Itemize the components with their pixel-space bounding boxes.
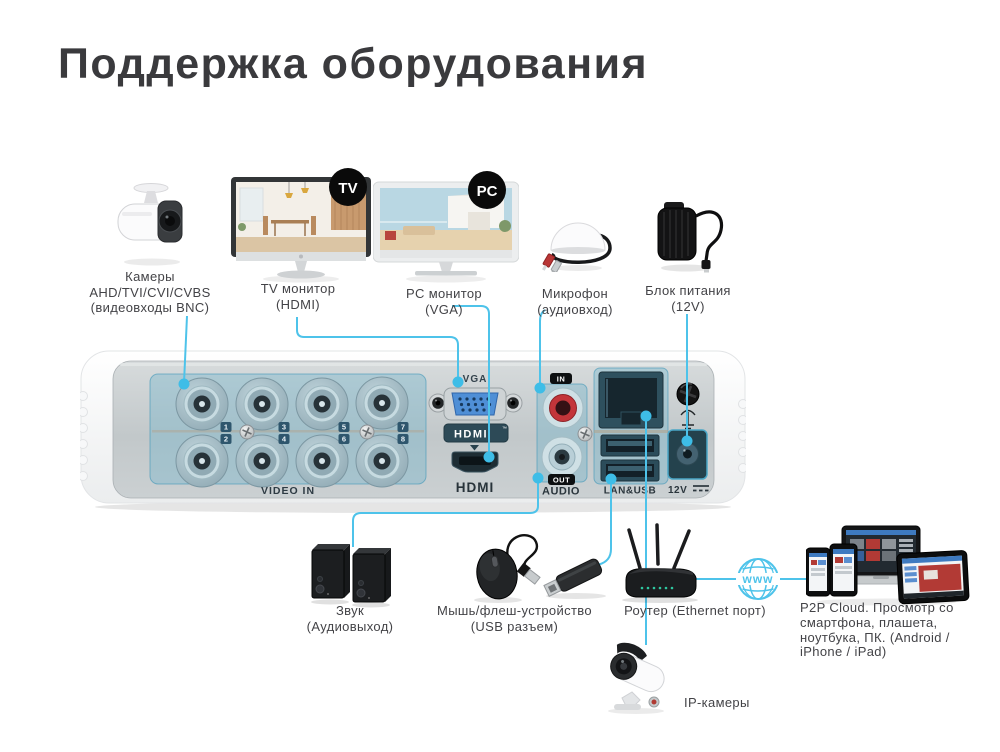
dc-power-jack [668, 430, 707, 479]
audio-in-badge: IN [557, 375, 566, 384]
mouse-flash-illustration [458, 524, 614, 604]
usb-devices-label: Мышь/флеш-устройство (USB разъем) [422, 603, 607, 634]
power-adapter-illustration [650, 198, 730, 274]
tv-badge: TV [329, 168, 367, 206]
bnc-connector [176, 435, 228, 487]
usb-plug [517, 563, 541, 585]
hdmi-label: HDMI [456, 480, 495, 495]
svg-text:7: 7 [401, 423, 405, 432]
svg-text:5: 5 [342, 423, 346, 432]
audio-label: AUDIO [542, 486, 580, 498]
rca-audio-out [542, 437, 582, 477]
tv-monitor-label: TV монитор (HDMI) [228, 281, 368, 312]
tablet [897, 550, 970, 604]
video-in-label: VIDEO IN [261, 485, 315, 497]
video-in-section: 1 2 3 4 5 6 7 8 VIDEO IN [150, 374, 426, 497]
tv-monitor-illustration: TV [231, 167, 373, 283]
page-title: Поддержка оборудования [58, 40, 648, 89]
svg-text:8: 8 [401, 435, 405, 444]
screw [360, 425, 374, 439]
lan-usb-section: LAN&USB [594, 368, 668, 497]
www-globe-icon: www [731, 552, 785, 608]
router-antennas [629, 525, 689, 568]
pc-monitor-illustration: PC [373, 168, 519, 284]
bnc-connector [356, 377, 408, 429]
svg-text:2: 2 [224, 435, 228, 444]
mouse-body [473, 546, 521, 602]
power-supply-label: Блок питания (12V) [618, 283, 758, 314]
p2p-cloud-label: P2P Cloud. Просмотр со смартфона, плашет… [800, 601, 992, 660]
router-label: Роутер (Ethernet порт) [595, 603, 795, 619]
screw [240, 425, 254, 439]
pc-badge: PC [468, 171, 506, 209]
speakers-illustration [306, 542, 398, 608]
smartphone [806, 548, 830, 596]
p2p-devices-illustration [806, 524, 971, 608]
ip-camera-body [605, 638, 673, 695]
power-screw [677, 383, 699, 405]
dvr-back-panel: 1 2 3 4 5 6 7 8 VIDEO IN VGA [80, 350, 746, 516]
power-label: 12V [668, 485, 687, 496]
svg-text:1: 1 [224, 423, 228, 432]
usb-port [601, 460, 659, 481]
router-illustration [616, 522, 708, 604]
ethernet-port [599, 372, 663, 428]
speakers-label: Звук (Аудиовыход) [280, 603, 420, 634]
audio-jack-3.5mm [504, 394, 522, 412]
vga-label: VGA [463, 374, 488, 385]
ip-cameras-label: IP-камеры [684, 695, 784, 711]
rca-audio-in [543, 388, 583, 428]
svg-text:TV: TV [338, 180, 357, 197]
svg-text:3: 3 [282, 423, 286, 432]
infographic-canvas: Поддержка оборудования [0, 0, 1000, 752]
svg-text:PC: PC [477, 183, 498, 200]
cameras-label: Камеры AHD/TVI/CVI/CVBS (видеовходы BNC) [70, 269, 230, 316]
hdmi-logo-tm: ™ [502, 426, 507, 432]
usb-port [601, 435, 659, 456]
microphone-illustration [540, 212, 616, 272]
flash-drive [543, 557, 603, 598]
smartphone [830, 544, 857, 596]
screw [578, 427, 592, 441]
audio-out-badge: OUT [553, 476, 570, 485]
svg-text:6: 6 [342, 435, 346, 444]
lan-usb-label: LAN&USB [604, 486, 656, 497]
bnc-connector [176, 378, 228, 430]
analog-camera-illustration [106, 182, 196, 268]
hdmi-logo: HDMI [454, 429, 488, 441]
www-label: www [741, 572, 773, 586]
speaker [353, 548, 391, 602]
pc-monitor-label: PC монитор (VGA) [374, 286, 514, 317]
speaker [312, 544, 350, 598]
ip-camera-illustration [598, 638, 686, 716]
